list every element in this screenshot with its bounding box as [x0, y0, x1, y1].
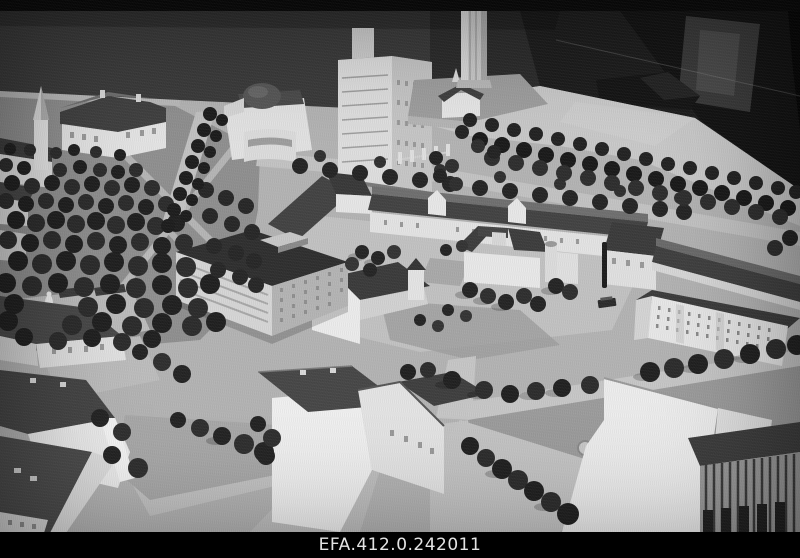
city-model-scene [0, 0, 800, 558]
archival-photo: EFA.412.0.242011 [0, 0, 800, 558]
watermark-bar: EFA.412.0.242011 [0, 532, 800, 558]
watermark-text: EFA.412.0.242011 [319, 532, 482, 558]
